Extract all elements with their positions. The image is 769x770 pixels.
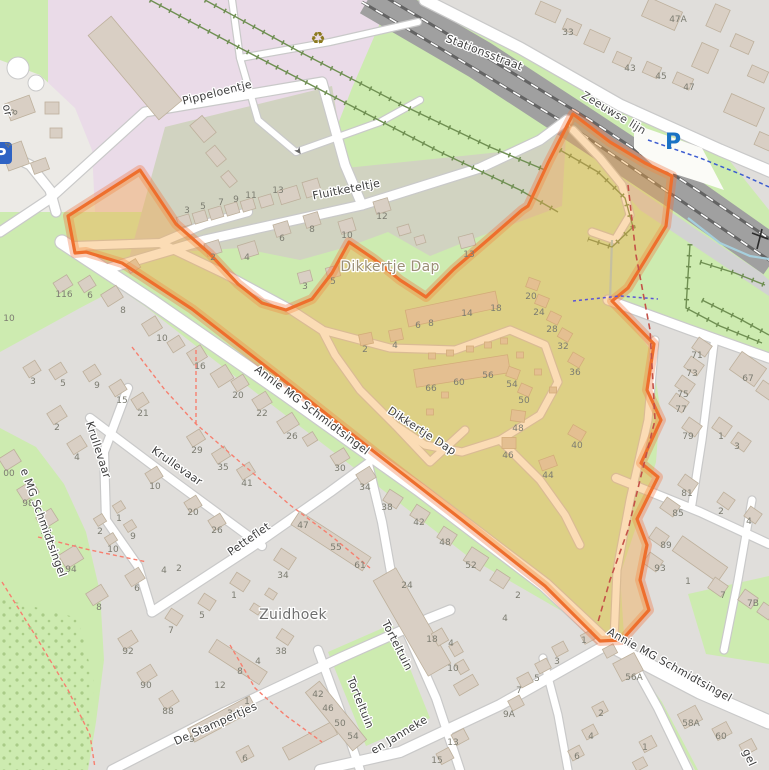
housenumber: 32 — [557, 342, 568, 352]
housenumber: 89 — [660, 541, 672, 551]
housenumber: 34 — [277, 571, 289, 581]
housenumber: 92 — [122, 647, 133, 657]
housenumber: 15 — [116, 396, 127, 406]
housenumber: 6 — [242, 754, 248, 764]
housenumber: 8 — [120, 306, 126, 316]
housenumber: 48 — [512, 424, 524, 434]
housenumber: 4 — [448, 639, 454, 649]
housenumber: 3 — [302, 282, 308, 292]
housenumber: 73 — [686, 369, 697, 379]
housenumber: 7 — [168, 626, 174, 636]
parking-icon: P — [665, 130, 681, 155]
housenumber: 81 — [681, 489, 692, 499]
housenumber: 16 — [194, 362, 206, 372]
housenumber: 79 — [682, 432, 694, 442]
housenumber: 8 — [309, 225, 315, 235]
housenumber: 4 — [161, 566, 167, 576]
housenumber: 8 — [428, 319, 434, 329]
housenumber: 10 — [447, 664, 459, 674]
housenumber: 24 — [401, 581, 413, 591]
housenumber: 6 — [134, 584, 140, 594]
housenumber: 7 — [720, 591, 726, 601]
housenumber: 1 — [685, 577, 691, 587]
housenumber: 9 — [130, 532, 136, 542]
housenumber: 47 — [683, 83, 694, 93]
housenumber: 3 — [554, 657, 560, 667]
housenumber: 2 — [210, 253, 216, 263]
housenumber: 10 — [149, 482, 161, 492]
housenumber: 2 — [54, 423, 60, 433]
housenumber: 1 — [718, 432, 724, 442]
housenumber: 10 — [156, 334, 168, 344]
housenumber: 29 — [191, 446, 203, 456]
recycle-icon: ♻ — [310, 29, 325, 49]
housenumber: 00 — [3, 469, 15, 479]
housenumber: 2 — [515, 591, 521, 601]
housenumber: 36 — [569, 368, 581, 378]
housenumber: 77 — [675, 405, 686, 415]
housenumber: 33 — [562, 28, 573, 38]
housenumber: 6 — [87, 291, 93, 301]
housenumber: 35 — [217, 463, 228, 473]
housenumber: 24 — [533, 308, 545, 318]
housenumber: 38 — [275, 647, 287, 657]
housenumber: 5 — [199, 611, 205, 621]
housenumber: 42 — [413, 518, 424, 528]
housenumber: 9A — [503, 710, 516, 720]
housenumber: 85 — [672, 509, 683, 519]
housenumber: 88 — [162, 707, 174, 717]
housenumber: 47A — [669, 15, 687, 25]
housenumber: 2 — [176, 564, 182, 574]
housenumber: 4 — [255, 657, 261, 667]
housenumber: 10 — [341, 231, 353, 241]
housenumber: 55 — [330, 543, 341, 553]
housenumber: 4 — [74, 453, 80, 463]
housenumber: 13 — [447, 738, 458, 748]
housenumber: 52 — [465, 561, 476, 571]
housenumber: 14 — [461, 309, 473, 319]
housenumber: 40 — [571, 441, 583, 451]
housenumber: 54 — [506, 380, 518, 390]
housenumber: 18 — [490, 304, 502, 314]
housenumber: 3 — [30, 377, 36, 387]
housenumber: 41 — [241, 479, 252, 489]
housenumber: 20 — [525, 292, 537, 302]
tank-icon — [7, 57, 29, 79]
housenumber: 56 — [482, 371, 494, 381]
housenumber: 20 — [232, 391, 244, 401]
housenumber: 10 — [107, 545, 119, 555]
housenumber: 4 — [244, 253, 250, 263]
housenumber: 2 — [598, 709, 604, 719]
housenumber: 4 — [502, 614, 508, 624]
housenumber: 93 — [654, 564, 665, 574]
housenumber: 46 — [322, 704, 334, 714]
housenumber: 15 — [431, 756, 442, 766]
housenumber: 5 — [330, 277, 336, 287]
housenumber: 2 — [97, 527, 103, 537]
street-label: Zuidhoek — [259, 607, 327, 623]
housenumber: 4 — [746, 517, 752, 527]
housenumber: 66 — [425, 384, 437, 394]
housenumber: 2 — [718, 507, 724, 517]
housenumber: 50 — [518, 396, 530, 406]
housenumber: 9 — [233, 195, 239, 205]
building — [50, 128, 62, 138]
housenumber: 1 — [642, 743, 648, 753]
housenumber: 54 — [347, 732, 359, 742]
housenumber: 60 — [453, 378, 465, 388]
housenumber: 5 — [60, 379, 66, 389]
housenumber: 50 — [334, 719, 346, 729]
housenumber: 1 — [581, 636, 587, 646]
housenumber: 30 — [334, 464, 346, 474]
housenumber: 4 — [392, 341, 398, 351]
housenumber: 3 — [184, 206, 190, 216]
housenumber: 34 — [359, 483, 371, 493]
housenumber: 26 — [286, 432, 298, 442]
housenumber: 8 — [237, 667, 243, 677]
map-canvas[interactable]: PP♻➤3343454747A3579111324681012351368141… — [0, 0, 769, 770]
housenumber: 1 — [231, 591, 237, 601]
housenumber: 22 — [256, 409, 267, 419]
housenumber: 5 — [534, 674, 540, 684]
housenumber: 9 — [94, 381, 100, 391]
housenumber: 26 — [211, 526, 223, 536]
housenumber: 7B — [747, 599, 759, 609]
street-label: Dikkertje Dap — [340, 259, 439, 275]
housenumber: 116 — [55, 290, 72, 300]
housenumber: 60 — [715, 732, 727, 742]
housenumber: 18 — [426, 635, 438, 645]
housenumber: 47 — [297, 521, 308, 531]
housenumber: 11 — [245, 191, 256, 201]
housenumber: 75 — [677, 390, 688, 400]
housenumber: 13 — [272, 186, 283, 196]
housenumber: 12 — [376, 212, 387, 222]
housenumber: 3 — [734, 442, 740, 452]
housenumber: 56A — [625, 673, 643, 683]
housenumber: 45 — [655, 72, 666, 82]
housenumber: 44 — [542, 471, 554, 481]
housenumber: 8 — [96, 603, 102, 613]
housenumber: 28 — [546, 325, 558, 335]
housenumber: 38 — [381, 503, 393, 513]
housenumber: 7 — [218, 198, 224, 208]
housenumber: 48 — [439, 538, 451, 548]
housenumber: 10 — [3, 314, 15, 324]
housenumber: 6 — [279, 234, 285, 244]
housenumber: 13 — [463, 250, 474, 260]
map-viewport: PP♻➤3343454747A3579111324681012351368141… — [0, 0, 769, 770]
housenumber: 4 — [588, 732, 594, 742]
housenumber: 61 — [354, 561, 365, 571]
housenumber: 7 — [516, 686, 522, 696]
building — [45, 102, 59, 114]
housenumber: 21 — [137, 409, 148, 419]
housenumber: 42 — [312, 690, 323, 700]
housenumber: 67 — [742, 374, 753, 384]
housenumber: 58A — [682, 719, 700, 729]
housenumber: 20 — [187, 508, 199, 518]
housenumber: 5 — [200, 202, 206, 212]
housenumber: 43 — [624, 64, 635, 74]
housenumber: 46 — [502, 451, 514, 461]
housenumber: 90 — [140, 681, 152, 691]
housenumber: 12 — [214, 681, 225, 691]
housenumber: 6 — [415, 321, 421, 331]
housenumber: 6 — [574, 752, 580, 762]
housenumber: 1 — [116, 514, 122, 524]
housenumber: 2 — [362, 345, 368, 355]
tank-icon — [28, 75, 44, 91]
housenumber: 71 — [691, 351, 702, 361]
